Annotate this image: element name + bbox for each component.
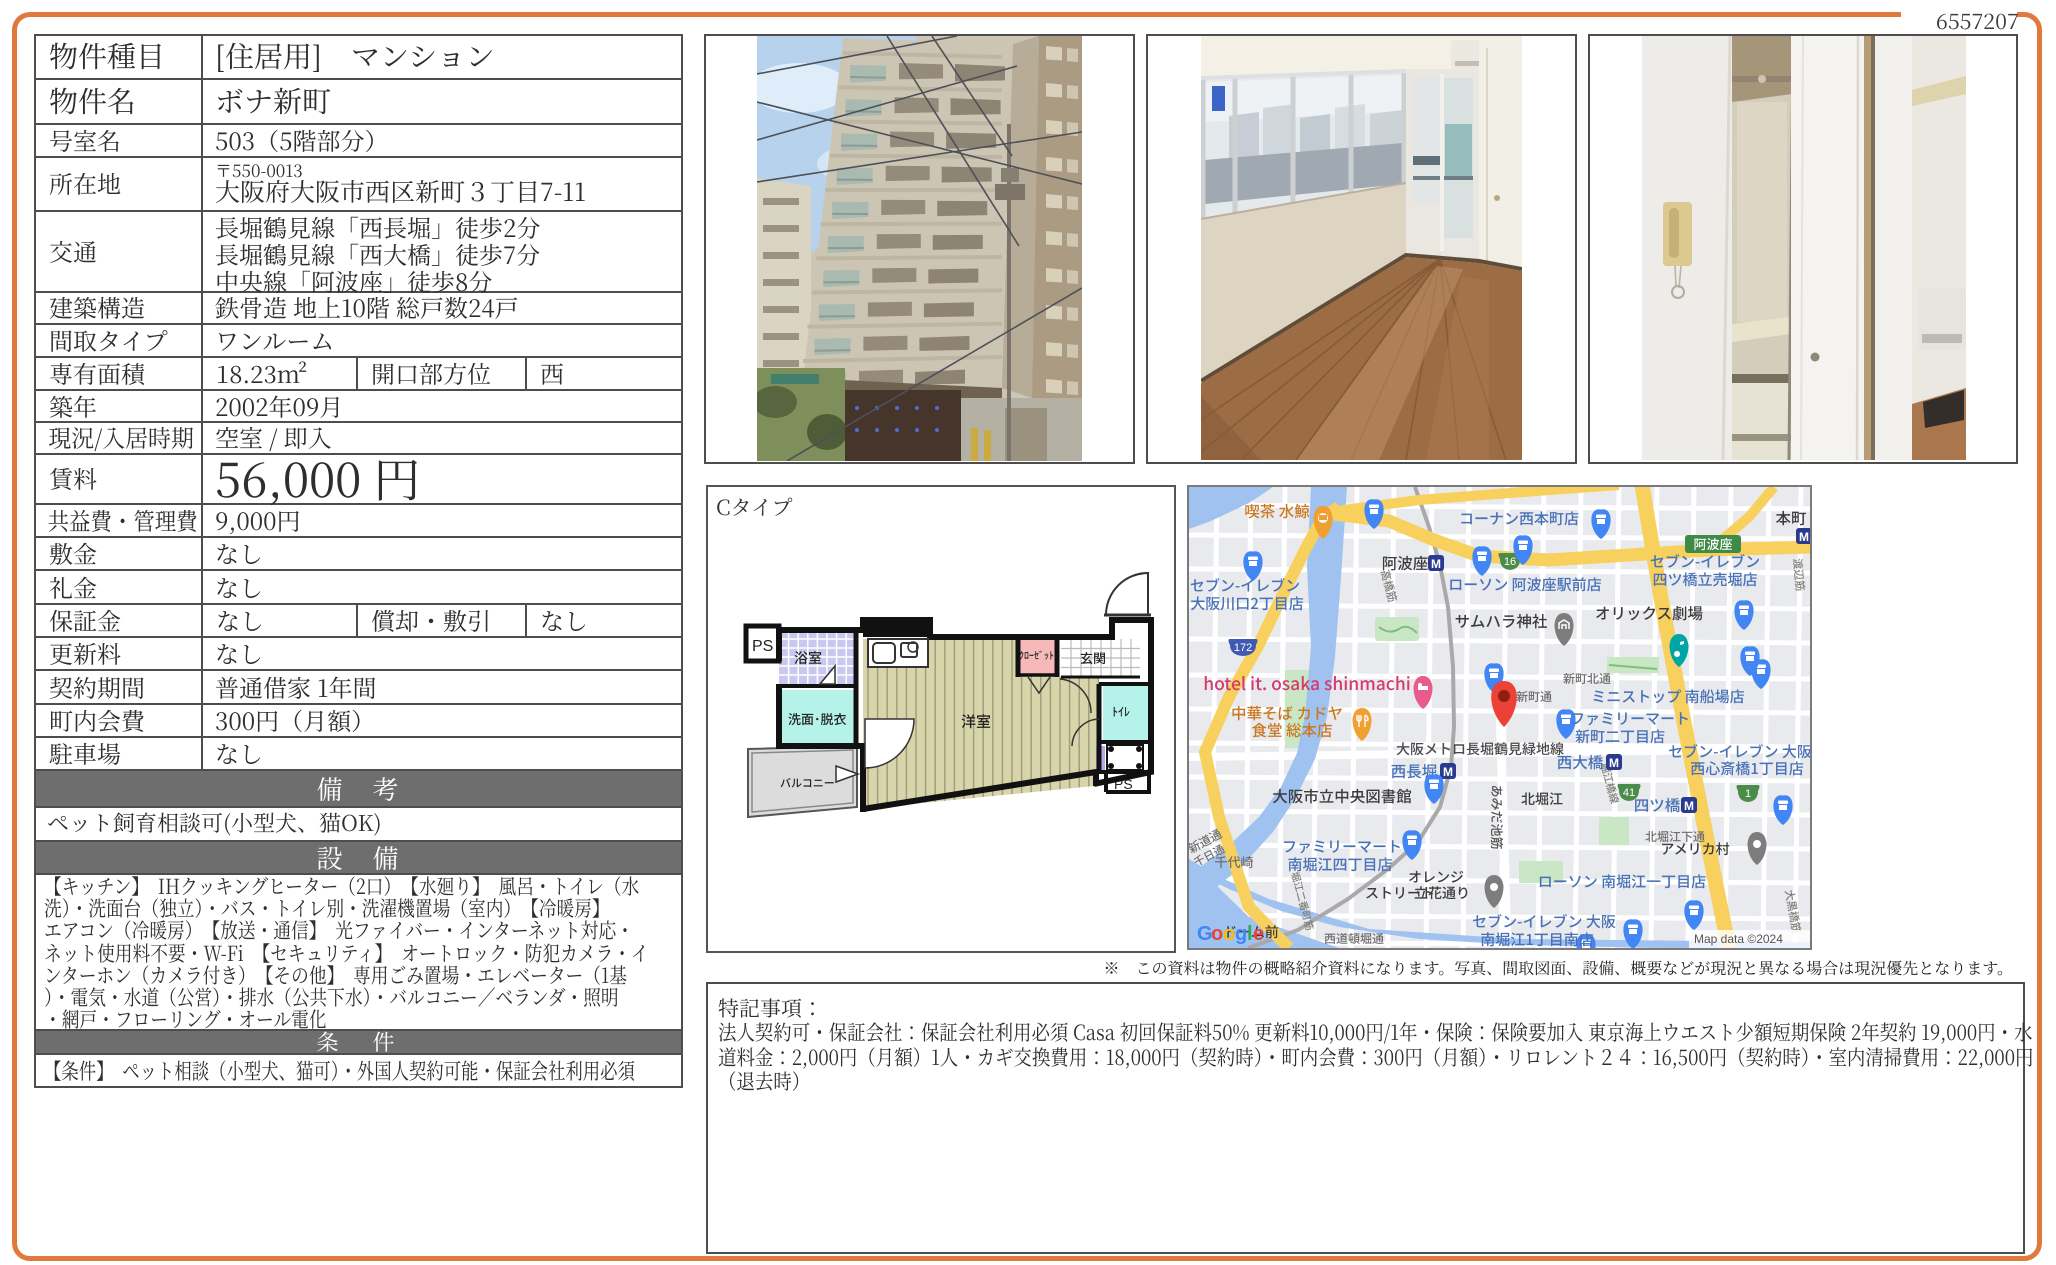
svg-text:新町二丁目店: 新町二丁目店 [1575,726,1665,747]
svg-text:新町北通: 新町北通 [1563,670,1611,687]
svg-text:玄関: 玄関 [1080,648,1106,667]
svg-text:北堀江: 北堀江 [1521,789,1563,809]
svg-text:M: M [1431,557,1441,571]
svg-text:e: e [1253,923,1264,945]
svg-text:食堂 総本店: 食堂 総本店 [1252,719,1333,741]
svg-text:172: 172 [1234,642,1252,654]
svg-text:西道頓堀通: 西道頓堀通 [1324,930,1384,947]
svg-text:ｸﾛｰｾﾞｯﾄ: ｸﾛｰｾﾞｯﾄ [1019,647,1054,662]
svg-text:大阪メトロ長堀鶴見緑地線: 大阪メトロ長堀鶴見緑地線 [1396,739,1564,759]
svg-text:l: l [1247,923,1253,945]
svg-text:南堀江四丁目店: 南堀江四丁目店 [1287,854,1392,875]
svg-text:ﾄｲﾚ: ﾄｲﾚ [1112,703,1130,720]
svg-text:1: 1 [1745,788,1751,800]
svg-text:大阪市立中央図書館: 大阪市立中央図書館 [1272,785,1412,807]
svg-text:本町: 本町 [1775,507,1807,529]
svg-text:g: g [1235,923,1247,945]
svg-text:千代崎: 千代崎 [1214,852,1253,871]
svg-text:バルコニー: バルコニー [780,775,835,791]
svg-text:Map data ©2024: Map data ©2024 [1694,932,1783,946]
svg-text:アメリカ村: アメリカ村 [1660,839,1729,859]
svg-text:四ツ橋: 四ツ橋 [1634,794,1681,816]
svg-text:あみだ池筋: あみだ池筋 [1488,784,1507,849]
svg-text:o: o [1223,923,1235,945]
svg-text:ローソン 阿波座駅前店: ローソン 阿波座駅前店 [1448,574,1601,595]
svg-text:M: M [1684,799,1694,813]
svg-text:浴室: 浴室 [794,648,822,668]
svg-text:四ツ橋立売堀店: 四ツ橋立売堀店 [1652,569,1757,590]
svg-text:M: M [1799,530,1809,544]
svg-text:喫茶 水鯨: 喫茶 水鯨 [1244,500,1310,522]
svg-text:オリックス劇場: オリックス劇場 [1595,602,1703,624]
svg-text:南堀江1丁目南店: 南堀江1丁目南店 [1480,929,1594,948]
svg-text:サムハラ神社: サムハラ神社 [1455,610,1548,632]
svg-text:ミニストップ 南船場店: ミニストップ 南船場店 [1591,686,1744,707]
svg-text:16: 16 [1504,556,1516,568]
svg-text:西心斎橋1丁目店: 西心斎橋1丁目店 [1690,758,1804,779]
svg-text:コーナン西本町店: コーナン西本町店 [1459,508,1579,529]
svg-text:M: M [1609,756,1619,770]
svg-text:阿波座: 阿波座 [1382,552,1429,574]
svg-text:ローソン 南堀江一丁目店: ローソン 南堀江一丁目店 [1538,871,1706,892]
svg-text:M: M [1443,765,1453,779]
svg-text:o: o [1211,923,1223,945]
svg-text:hotel it. osaka shinmachi: hotel it. osaka shinmachi [1203,671,1411,696]
svg-text:PS: PS [752,638,773,655]
svg-text:洗面･脱衣: 洗面･脱衣 [788,709,847,728]
svg-text:洋室: 洋室 [961,711,991,732]
svg-text:大阪川口2丁目店: 大阪川口2丁目店 [1190,593,1304,614]
svg-text:渡辺筋: 渡辺筋 [1790,558,1809,592]
svg-text:立花通り: 立花通り [1414,883,1470,903]
svg-text:新町通: 新町通 [1516,688,1552,705]
